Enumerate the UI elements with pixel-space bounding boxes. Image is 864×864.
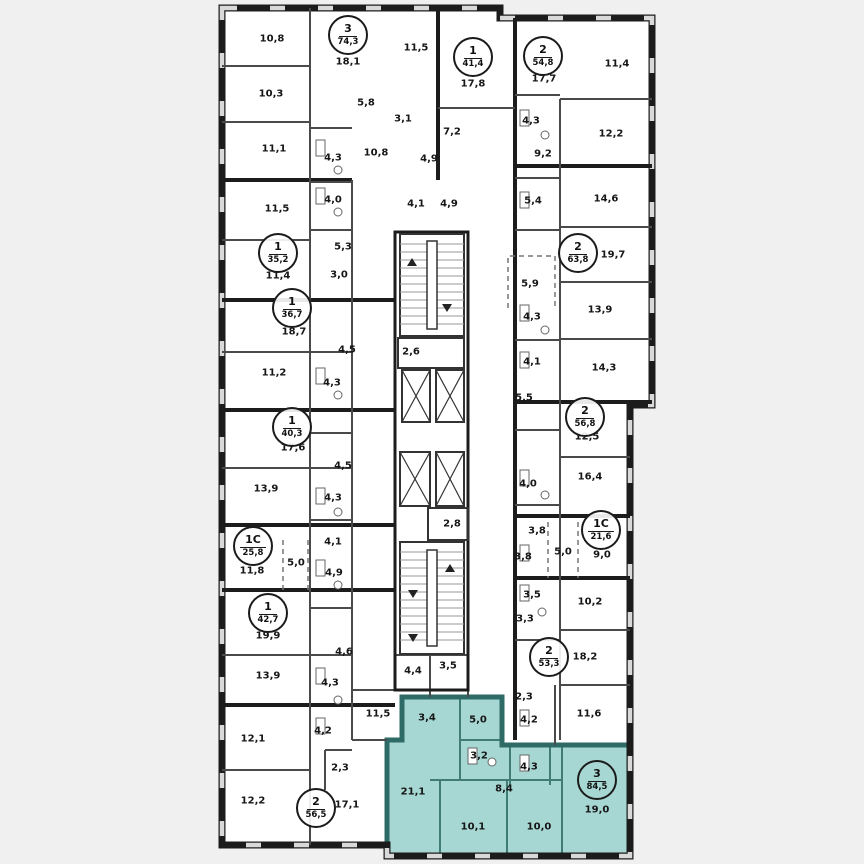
apartment-type-label: 2 (540, 645, 558, 659)
room-area-label: 13,9 (588, 305, 613, 316)
apartment-area-label: 74,3 (338, 37, 359, 47)
room-area-label: 4,0 (324, 195, 342, 206)
room-area-label: 5,8 (357, 98, 375, 109)
room-area-label: 4,3 (324, 493, 342, 504)
apartment-type-label: 3 (588, 768, 606, 782)
room-area-label: 2,3 (515, 692, 533, 703)
room-area-label: 10,3 (259, 89, 284, 100)
room-area-label: 3,5 (523, 590, 541, 601)
room-area-label: 11,5 (366, 709, 391, 720)
room-area-label: 3,4 (418, 713, 436, 724)
floor-plan-drawing (0, 0, 864, 864)
apartment-type-label: 1C (588, 518, 614, 532)
apartment-badge-selected[interactable]: 384,5 (577, 760, 617, 800)
room-area-label: 14,6 (594, 194, 619, 205)
room-area-label: 12,1 (241, 734, 266, 745)
room-area-label: 4,5 (338, 345, 356, 356)
room-area-label: 3,3 (516, 614, 534, 625)
room-area-label: 11,8 (240, 566, 265, 577)
room-area-label: 7,2 (443, 127, 461, 138)
floor-plan-canvas: 10,811,518,110,35,83,111,14,310,84,94,04… (0, 0, 864, 864)
room-area-label: 18,1 (336, 57, 361, 68)
room-area-label: 9,0 (593, 550, 611, 561)
apartment-type-label: 2 (576, 405, 594, 419)
room-area-label: 5,0 (287, 558, 305, 569)
room-area-label: 17,8 (461, 79, 486, 90)
room-area-label: 4,9 (420, 154, 438, 165)
room-area-label: 10,8 (364, 148, 389, 159)
room-area-label: 4,1 (407, 199, 425, 210)
room-area-label: 3,8 (514, 552, 532, 563)
apartment-badge[interactable]: 142,7 (248, 593, 288, 633)
apartment-area-label: 56,5 (306, 810, 327, 820)
room-area-label: 19,0 (585, 805, 610, 816)
room-area-label: 4,9 (325, 568, 343, 579)
room-area-label: 5,3 (334, 242, 352, 253)
apartment-badge[interactable]: 374,3 (328, 15, 368, 55)
apartment-badge[interactable]: 140,3 (272, 407, 312, 447)
room-area-label: 19,7 (601, 250, 626, 261)
room-area-label: 5,5 (515, 393, 533, 404)
apartment-badge[interactable]: 135,2 (258, 233, 298, 273)
room-area-label: 4,2 (314, 726, 332, 737)
apartment-type-label: 2 (534, 44, 552, 58)
apartment-area-label: 21,6 (591, 532, 612, 542)
room-area-label: 4,3 (324, 153, 342, 164)
room-area-label: 11,5 (265, 204, 290, 215)
apartment-area-label: 84,5 (587, 782, 608, 792)
apartment-badge[interactable]: 263,8 (558, 233, 598, 273)
room-area-label: 11,5 (404, 43, 429, 54)
room-area-label: 2,3 (331, 763, 349, 774)
room-area-label: 4,5 (334, 461, 352, 472)
apartment-type-label: 1C (240, 534, 266, 548)
room-area-label: 11,4 (605, 59, 630, 70)
apartment-type-label: 1 (283, 415, 301, 429)
room-area-label: 11,1 (262, 144, 287, 155)
apartment-type-label: 3 (339, 23, 357, 37)
room-area-label: 3,8 (528, 526, 546, 537)
room-area-label: 3,5 (439, 661, 457, 672)
apartment-area-label: 42,7 (258, 615, 279, 625)
apartment-area-label: 36,7 (282, 310, 303, 320)
room-area-label: 13,9 (256, 671, 281, 682)
room-area-label: 10,2 (578, 597, 603, 608)
room-area-label: 4,6 (335, 647, 353, 658)
apartment-area-label: 63,8 (568, 255, 589, 265)
apartment-area-label: 25,8 (243, 548, 264, 558)
room-area-label: 10,0 (527, 822, 552, 833)
room-area-label: 4,9 (440, 199, 458, 210)
room-area-label: 3,1 (394, 114, 412, 125)
room-area-label: 4,0 (519, 479, 537, 490)
apartment-area-label: 53,3 (539, 659, 560, 669)
apartment-type-label: 1 (259, 601, 277, 615)
room-area-label: 4,3 (522, 116, 540, 127)
apartment-badge[interactable]: 141,4 (453, 37, 493, 77)
room-area-label: 4,3 (321, 678, 339, 689)
room-area-label: 10,8 (260, 34, 285, 45)
room-area-label: 4,3 (520, 762, 538, 773)
room-area-label: 18,2 (573, 652, 598, 663)
apartment-badge[interactable]: 256,8 (565, 397, 605, 437)
room-area-label: 18,7 (282, 327, 307, 338)
room-area-label: 16,4 (578, 472, 603, 483)
apartment-type-label: 1 (283, 296, 301, 310)
room-area-label: 5,0 (469, 715, 487, 726)
room-area-label: 14,3 (592, 363, 617, 374)
room-area-label: 5,9 (521, 279, 539, 290)
room-area-label: 9,2 (534, 149, 552, 160)
room-area-label: 11,2 (262, 368, 287, 379)
room-area-label: 3,0 (330, 270, 348, 281)
room-area-label: 4,1 (324, 537, 342, 548)
apartment-type-label: 1 (464, 45, 482, 59)
room-area-label: 4,4 (404, 666, 422, 677)
apartment-badge[interactable]: 1C25,8 (233, 526, 273, 566)
apartment-type-label: 1 (269, 241, 287, 255)
apartment-type-label: 2 (569, 241, 587, 255)
room-area-label: 21,1 (401, 787, 426, 798)
room-area-label: 11,6 (577, 709, 602, 720)
room-area-label: 12,2 (241, 796, 266, 807)
room-area-label: 4,3 (323, 378, 341, 389)
apartment-badge[interactable]: 256,5 (296, 788, 336, 828)
room-area-label: 2,6 (402, 347, 420, 358)
room-area-label: 17,1 (335, 800, 360, 811)
room-area-label: 4,2 (520, 715, 538, 726)
apartment-badge[interactable]: 136,7 (272, 288, 312, 328)
apartment-badge[interactable]: 253,3 (529, 637, 569, 677)
room-area-label: 8,4 (495, 784, 513, 795)
room-area-label: 3,2 (470, 751, 488, 762)
room-area-label: 4,1 (523, 357, 541, 368)
apartment-area-label: 41,4 (463, 59, 484, 69)
room-area-label: 13,9 (254, 484, 279, 495)
apartment-area-label: 54,8 (533, 58, 554, 68)
room-area-label: 2,8 (443, 519, 461, 530)
apartment-area-label: 40,3 (282, 429, 303, 439)
apartment-area-label: 56,8 (575, 419, 596, 429)
room-area-label: 5,0 (554, 547, 572, 558)
room-area-label: 5,4 (524, 196, 542, 207)
room-area-label: 10,1 (461, 822, 486, 833)
room-area-label: 4,3 (523, 312, 541, 323)
apartment-area-label: 35,2 (268, 255, 289, 265)
apartment-type-label: 2 (307, 796, 325, 810)
apartment-badge[interactable]: 1C21,6 (581, 510, 621, 550)
room-area-label: 12,2 (599, 129, 624, 140)
apartment-badge[interactable]: 254,8 (523, 36, 563, 76)
